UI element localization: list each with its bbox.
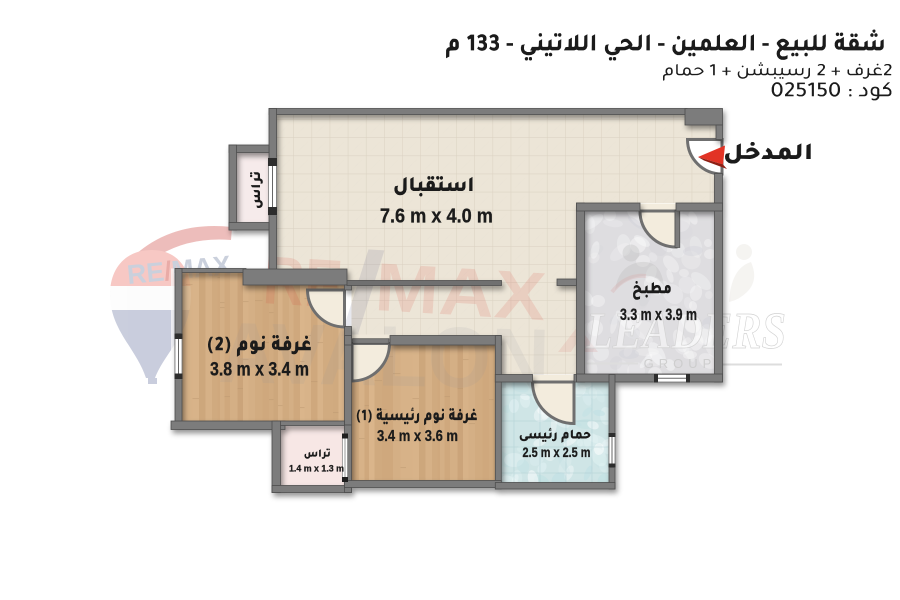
svg-text:3.8 m x 3.4 m: 3.8 m x 3.4 m xyxy=(210,359,309,381)
svg-text:1.4 m x 1.3 m: 1.4 m x 1.3 m xyxy=(289,464,344,475)
svg-text:3.4 m x 3.6 m: 3.4 m x 3.6 m xyxy=(377,428,458,445)
svg-text:2.5 m x 2.5 m: 2.5 m x 2.5 m xyxy=(523,444,591,460)
svg-text:GROUP: GROUP xyxy=(644,356,717,371)
svg-text:7.6 m x 4.0 m: 7.6 m x 4.0 m xyxy=(380,204,493,227)
svg-text:3.3 m x 3.9 m: 3.3 m x 3.9 m xyxy=(620,306,697,324)
